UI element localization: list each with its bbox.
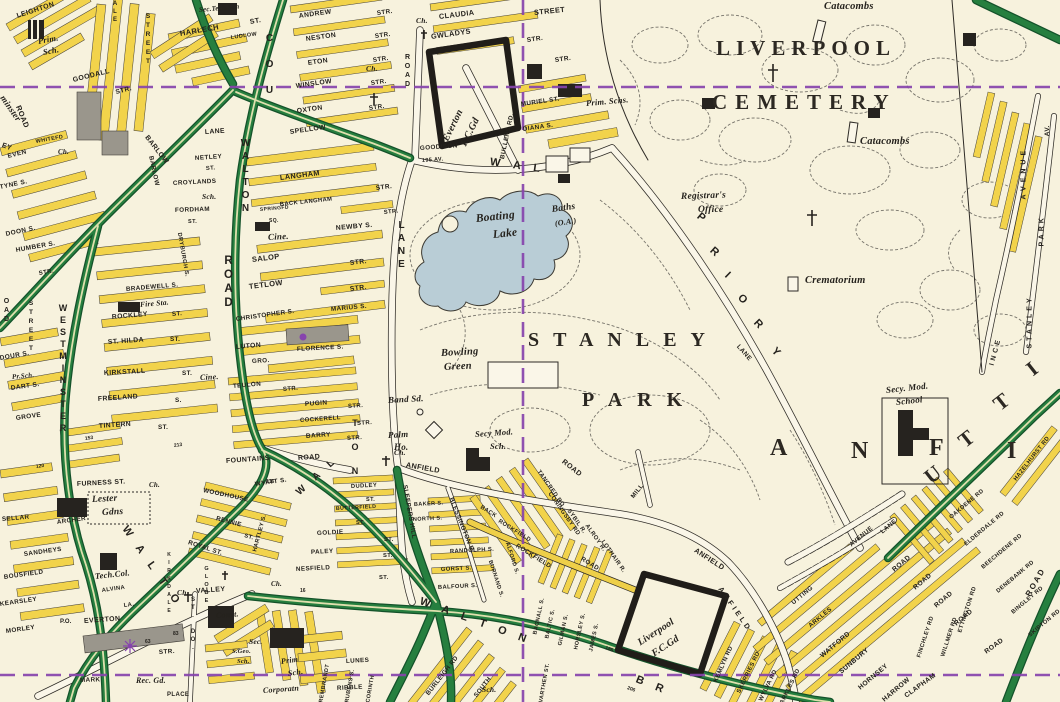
map-artwork — [0, 0, 1060, 702]
map-canvas[interactable]: LEIGHTONPrim.Sch.ALESTREETSec.Tech.SchHA… — [0, 0, 1060, 702]
lake-fountain — [442, 216, 458, 232]
